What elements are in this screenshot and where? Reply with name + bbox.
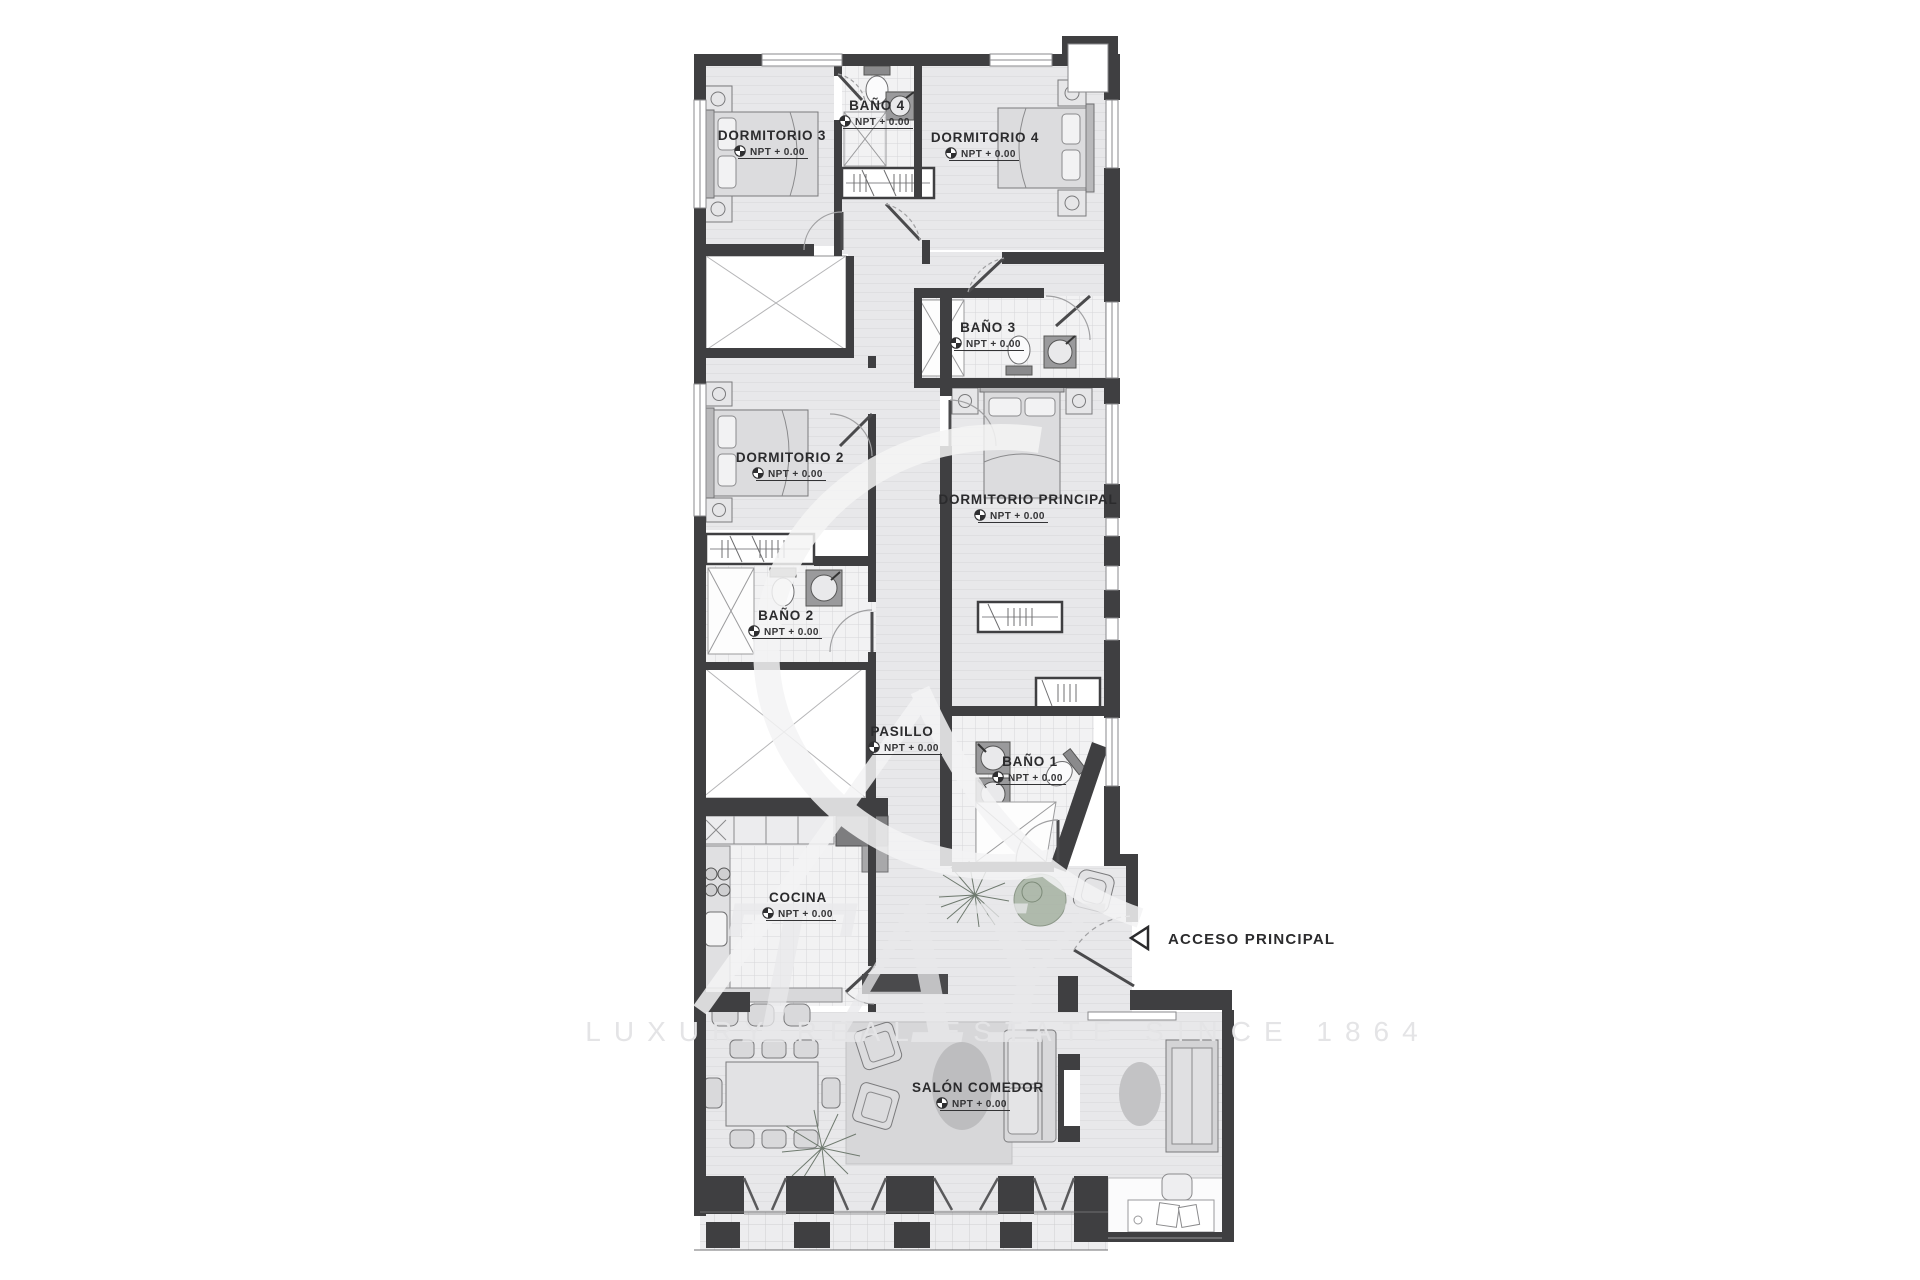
svg-text:BAÑO 4: BAÑO 4 (849, 98, 905, 113)
svg-text:SALÓN COMEDOR: SALÓN COMEDOR (912, 1080, 1044, 1095)
svg-text:NPT + 0.00: NPT + 0.00 (750, 147, 805, 158)
svg-text:BAÑO 3: BAÑO 3 (960, 320, 1016, 335)
sink-bano3 (1044, 336, 1076, 368)
svg-text:NPT + 0.00: NPT + 0.00 (990, 511, 1045, 522)
svg-text:NPT + 0.00: NPT + 0.00 (884, 743, 939, 754)
svg-text:DORMITORIO PRINCIPAL: DORMITORIO PRINCIPAL (938, 492, 1117, 507)
svg-text:COCINA: COCINA (769, 890, 827, 905)
svg-text:NPT + 0.00: NPT + 0.00 (1008, 773, 1063, 784)
svg-text:PASILLO: PASILLO (870, 724, 933, 739)
svg-text:NPT + 0.00: NPT + 0.00 (778, 909, 833, 920)
entry-arrow-icon (1131, 927, 1148, 949)
sink-bano2 (806, 570, 842, 606)
window-top-2 (990, 54, 1052, 66)
closet-principal-1 (978, 602, 1062, 632)
watermark-tagline: LUXURY REAL ESTATE SINCE 1864 (585, 1016, 1430, 1047)
window-top-1 (762, 54, 842, 66)
light-well-1 (706, 256, 846, 350)
daybed (1166, 1040, 1218, 1152)
window-dorm2-left (694, 384, 706, 516)
svg-text:DORMITORIO 2: DORMITORIO 2 (736, 450, 844, 465)
svg-text:DORMITORIO 4: DORMITORIO 4 (931, 130, 1039, 145)
notch-window (1068, 44, 1108, 92)
entry-label: ACCESO PRINCIPAL (1168, 931, 1335, 948)
svg-text:BAÑO 2: BAÑO 2 (758, 608, 814, 623)
svg-text:NPT + 0.00: NPT + 0.00 (768, 469, 823, 480)
svg-text:NPT + 0.00: NPT + 0.00 (952, 1099, 1007, 1110)
svg-text:NPT + 0.00: NPT + 0.00 (855, 117, 910, 128)
svg-text:DORMITORIO 3: DORMITORIO 3 (718, 128, 826, 143)
window-dorm3-left (694, 100, 706, 208)
svg-text:NPT + 0.00: NPT + 0.00 (764, 627, 819, 638)
shower-bano2 (708, 568, 754, 654)
lounge-oval-rug (1119, 1062, 1161, 1126)
floor-plan-page: TAY LUXURY REAL ESTATE SINCE 1864 DORMIT… (0, 0, 1920, 1280)
closet-principal-2 (1036, 678, 1100, 708)
floor-plan: TAY LUXURY REAL ESTATE SINCE 1864 DORMIT… (0, 0, 1920, 1280)
entry-annotation: ACCESO PRINCIPAL (1131, 927, 1335, 949)
svg-text:BAÑO 1: BAÑO 1 (1002, 754, 1058, 769)
svg-text:NPT + 0.00: NPT + 0.00 (961, 149, 1016, 160)
svg-text:NPT + 0.00: NPT + 0.00 (966, 339, 1021, 350)
